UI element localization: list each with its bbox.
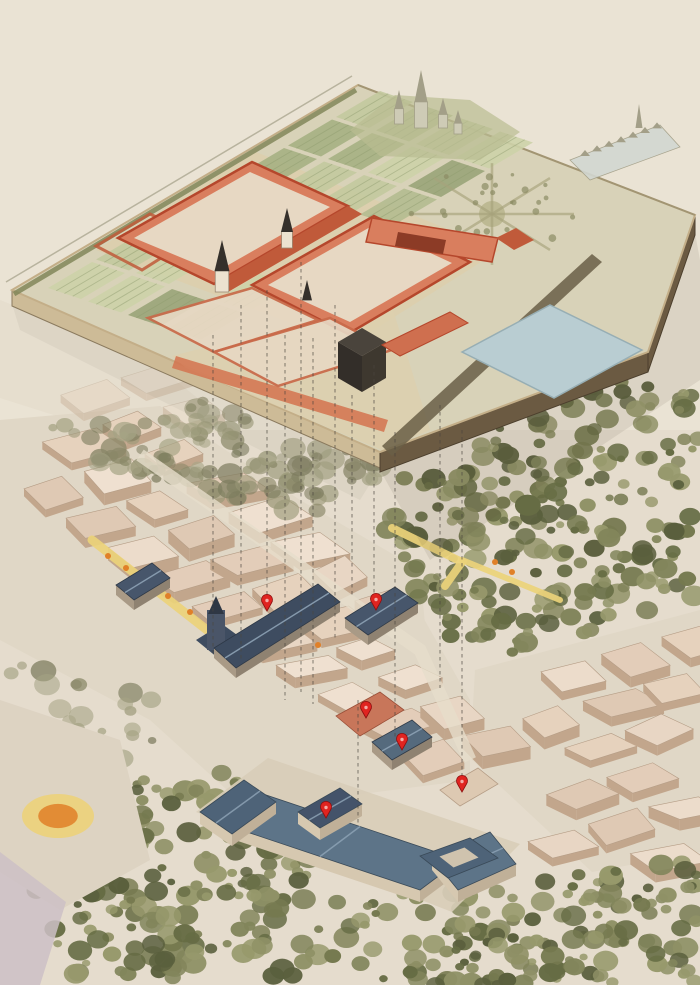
tree — [425, 958, 440, 971]
tree — [48, 699, 71, 718]
tree — [88, 453, 111, 472]
tree — [674, 406, 684, 414]
tree — [470, 951, 481, 960]
parterre-tree — [493, 183, 498, 188]
tree — [645, 497, 658, 508]
tree — [106, 905, 118, 915]
tree — [469, 927, 481, 937]
parterre-tree — [409, 211, 414, 216]
tree — [455, 963, 464, 971]
horizon-church-tower — [395, 109, 404, 124]
tree — [516, 613, 537, 630]
tree — [499, 613, 509, 621]
axonometric-overlay-illustration — [0, 0, 700, 985]
tree — [529, 934, 543, 946]
tree — [588, 931, 604, 944]
tree — [144, 881, 168, 900]
tree — [593, 911, 603, 919]
tree — [652, 535, 662, 543]
tree — [570, 527, 579, 534]
tree — [614, 920, 638, 940]
tree — [664, 523, 685, 540]
tree — [646, 518, 664, 533]
tree — [289, 872, 309, 889]
tree — [439, 946, 453, 958]
tree — [579, 498, 595, 511]
tree — [643, 884, 654, 893]
tree — [264, 902, 283, 917]
tree — [211, 765, 231, 781]
tree — [176, 822, 201, 842]
tree — [593, 455, 607, 467]
tree — [579, 954, 587, 961]
tree — [309, 487, 324, 499]
tree — [618, 479, 630, 489]
tree — [633, 898, 650, 912]
tree — [561, 906, 586, 927]
tree — [523, 628, 533, 636]
tree — [661, 905, 672, 914]
tree — [156, 906, 182, 927]
tree — [583, 889, 598, 902]
tree — [500, 517, 509, 524]
tree — [636, 601, 658, 619]
tree — [291, 889, 315, 909]
tree — [476, 906, 491, 918]
tree — [113, 422, 137, 442]
scene-canvas — [0, 0, 700, 985]
parterre-tree — [504, 227, 509, 232]
tree — [534, 544, 553, 560]
tree — [678, 969, 690, 979]
tree — [453, 932, 463, 940]
tree — [309, 504, 326, 518]
marker-highlight — [324, 806, 327, 809]
tree — [225, 844, 245, 861]
tree — [680, 881, 694, 893]
tree — [68, 428, 80, 438]
parterre-tree — [473, 200, 479, 206]
tree — [185, 944, 204, 960]
tree — [666, 545, 681, 557]
tree — [201, 851, 211, 859]
tree — [115, 966, 127, 976]
parterre-tree — [532, 208, 539, 215]
tree — [265, 890, 280, 902]
tree — [594, 471, 610, 484]
tree — [379, 975, 388, 982]
tree — [157, 864, 166, 871]
tree — [574, 557, 587, 568]
tree — [138, 775, 150, 785]
tree — [53, 940, 62, 947]
tree — [598, 570, 607, 578]
parterre-tree — [536, 200, 541, 205]
tree — [593, 878, 603, 886]
tree — [442, 628, 460, 643]
tree — [142, 935, 165, 954]
tree — [674, 861, 696, 879]
tree — [451, 946, 460, 953]
tree — [72, 912, 88, 925]
tree — [508, 521, 519, 530]
tree — [17, 662, 27, 670]
tree — [126, 923, 136, 931]
tree — [558, 546, 574, 559]
tree — [654, 559, 678, 579]
tree — [532, 604, 542, 612]
parterre-tree — [442, 212, 448, 218]
tree — [576, 626, 592, 639]
tree — [659, 463, 681, 481]
tree — [235, 475, 256, 493]
tree — [549, 966, 565, 979]
tree — [480, 628, 496, 641]
tree — [605, 494, 613, 501]
tree — [162, 796, 181, 812]
tree — [598, 577, 611, 588]
tree — [90, 416, 112, 434]
tree — [201, 465, 217, 479]
tree — [68, 941, 92, 961]
tree — [597, 528, 620, 547]
tree — [190, 880, 202, 890]
parterre-tree — [484, 228, 490, 234]
tree — [557, 565, 572, 578]
tree — [408, 559, 425, 573]
tree — [404, 949, 427, 968]
marker-highlight — [364, 706, 367, 709]
tree — [504, 944, 529, 964]
marker-highlight — [374, 598, 377, 601]
tree — [564, 958, 585, 975]
parterre-tree — [480, 191, 485, 196]
parterre-tree — [444, 174, 449, 179]
traffic-dot — [492, 559, 498, 565]
tree — [524, 912, 541, 926]
tree — [127, 462, 142, 474]
tree — [4, 667, 19, 679]
tree — [244, 922, 255, 931]
tree — [165, 971, 181, 984]
tree — [351, 956, 369, 971]
marker-highlight — [265, 599, 268, 602]
tree — [607, 443, 628, 461]
parterre-tree — [511, 173, 515, 177]
tree — [48, 424, 57, 431]
tree — [71, 678, 87, 691]
tree — [155, 839, 174, 854]
tree — [126, 897, 135, 904]
tree — [264, 869, 276, 879]
tree — [314, 925, 323, 933]
tree — [136, 795, 148, 805]
tree — [144, 869, 161, 883]
tree — [660, 438, 676, 451]
tree — [632, 540, 652, 557]
tree — [688, 446, 696, 453]
horizon-church-tower — [439, 115, 448, 129]
tree — [658, 887, 676, 902]
tree — [507, 933, 519, 942]
marker-highlight — [460, 780, 463, 783]
horizon-church-tower — [454, 123, 462, 134]
tree — [107, 431, 117, 439]
tree — [249, 458, 267, 473]
tree — [671, 920, 691, 936]
tree — [567, 882, 578, 891]
tree — [173, 924, 195, 942]
tree — [649, 855, 674, 875]
tree — [305, 949, 315, 957]
tree — [363, 941, 382, 957]
parterre-tree — [511, 200, 517, 206]
tree — [202, 892, 212, 900]
tree — [646, 946, 666, 962]
tree — [531, 892, 555, 911]
tree — [470, 587, 479, 594]
parterre-tree — [490, 190, 495, 195]
tree — [507, 894, 518, 903]
tree — [223, 940, 232, 947]
horizon-church-tower — [415, 102, 428, 128]
tree — [34, 674, 60, 695]
parterre-tree — [543, 183, 547, 187]
tree — [457, 603, 469, 613]
tree — [141, 692, 161, 708]
tree — [216, 885, 236, 901]
parterre-tree — [522, 186, 529, 193]
tree — [103, 947, 121, 962]
tree — [562, 930, 585, 949]
palace-tower — [282, 231, 293, 248]
roundabout-center — [38, 804, 78, 828]
tree — [431, 598, 452, 615]
tree — [178, 887, 191, 897]
tree — [415, 904, 436, 921]
tree — [603, 598, 615, 607]
tree — [64, 964, 88, 984]
tree — [274, 499, 300, 520]
parterre-tree — [486, 173, 493, 180]
traffic-dot — [187, 609, 193, 615]
tree — [124, 723, 141, 737]
traffic-dot — [123, 565, 129, 571]
tree — [679, 508, 700, 526]
tree — [227, 869, 237, 877]
tree — [574, 583, 596, 601]
tree — [371, 910, 380, 917]
tree — [398, 551, 411, 562]
tree — [556, 521, 564, 528]
tree — [138, 417, 153, 429]
tree — [155, 951, 176, 968]
tree — [74, 901, 82, 908]
tree — [572, 869, 586, 880]
tree — [544, 483, 567, 502]
tree — [148, 737, 157, 744]
tree — [246, 889, 261, 901]
tree — [261, 857, 278, 871]
tree — [283, 967, 303, 983]
tree — [69, 706, 94, 726]
traffic-dot — [165, 593, 171, 599]
tree — [642, 451, 658, 464]
tree — [360, 921, 370, 929]
traffic-dot — [315, 642, 321, 648]
tree — [530, 568, 542, 578]
tree — [593, 951, 618, 972]
tree — [600, 608, 616, 622]
tree — [585, 478, 595, 486]
traffic-dot — [509, 569, 515, 575]
tree — [678, 571, 696, 586]
tree — [673, 480, 684, 489]
tree — [563, 890, 573, 899]
parterre-tree — [544, 196, 549, 201]
tree — [402, 935, 422, 952]
tree — [252, 937, 273, 954]
tree — [205, 944, 217, 954]
tree — [636, 573, 656, 589]
tree — [142, 809, 153, 818]
tree — [677, 434, 691, 445]
tree — [535, 873, 555, 889]
tree — [515, 528, 535, 545]
tree — [541, 946, 565, 965]
tree — [167, 879, 175, 886]
tree — [206, 866, 227, 883]
parterre-tree — [482, 183, 489, 190]
tree — [610, 550, 623, 560]
tree — [170, 422, 191, 439]
tree — [614, 494, 628, 506]
parterre-tree — [570, 214, 575, 219]
tree — [655, 578, 668, 589]
tree — [637, 487, 648, 496]
tree — [610, 867, 621, 876]
tree — [126, 940, 145, 955]
tree — [466, 963, 479, 973]
tree — [117, 697, 133, 710]
parterre-tree — [549, 234, 557, 242]
marker-highlight — [400, 738, 403, 741]
tree — [597, 893, 615, 908]
tree — [502, 903, 525, 922]
tree — [363, 902, 372, 910]
palace-tower — [215, 270, 229, 292]
tree — [328, 895, 346, 910]
tree — [547, 527, 556, 534]
tree — [151, 784, 161, 792]
tree — [539, 615, 560, 632]
traffic-dot — [105, 553, 111, 559]
tree — [668, 959, 678, 967]
tree — [240, 867, 252, 877]
tree — [507, 647, 518, 656]
tree — [403, 966, 418, 978]
tree — [324, 949, 341, 963]
